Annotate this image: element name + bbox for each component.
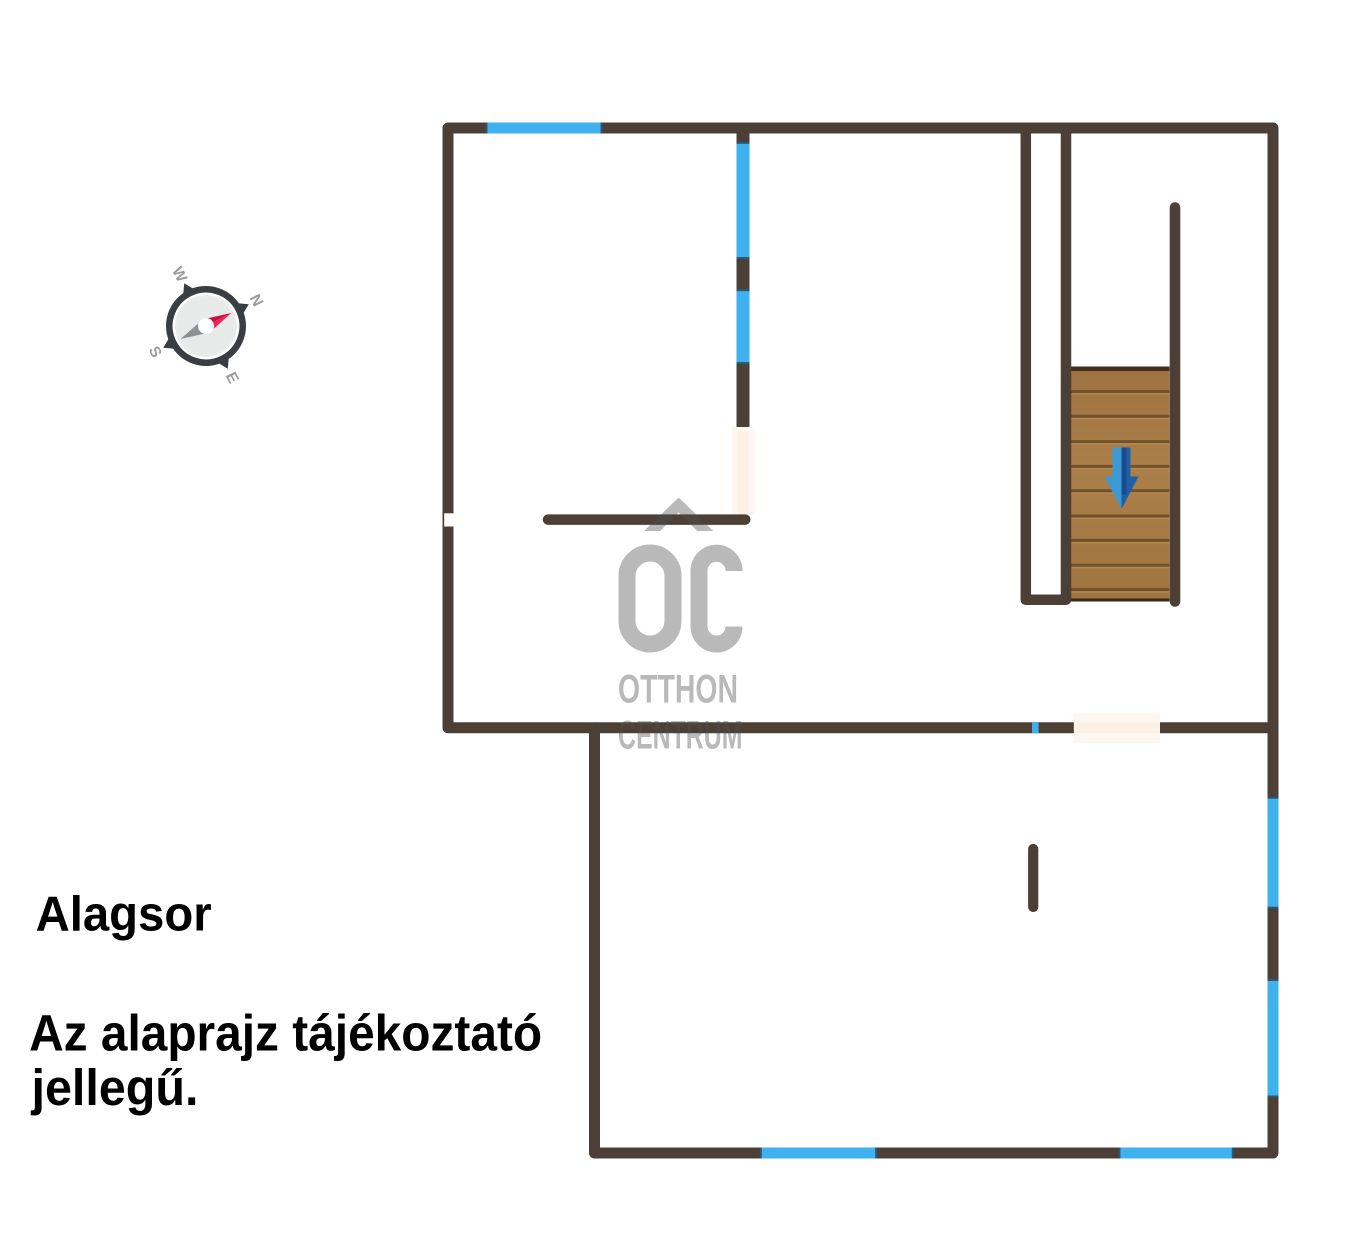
svg-text:OTTHON: OTTHON xyxy=(618,667,738,711)
svg-text:Alagsor: Alagsor xyxy=(36,887,212,941)
svg-text:CENTRUM: CENTRUM xyxy=(618,714,743,758)
svg-text:jellegű.: jellegű. xyxy=(31,1059,199,1116)
svg-text:Az alaprajz tájékoztató: Az alaprajz tájékoztató xyxy=(29,1005,542,1062)
